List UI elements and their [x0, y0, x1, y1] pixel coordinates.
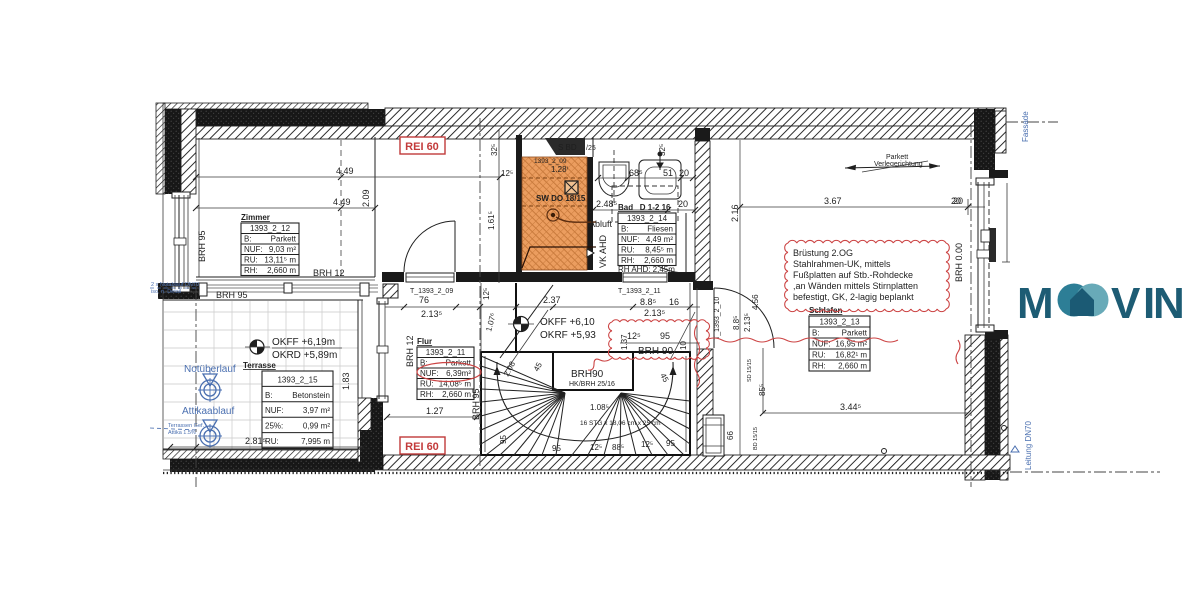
svg-text:M: M — [1017, 279, 1055, 328]
svg-text:RH AHD: 2,45m: RH AHD: 2,45m — [618, 265, 675, 274]
svg-text:25%:: 25%: — [265, 422, 283, 431]
svg-text:3.67: 3.67 — [824, 196, 842, 206]
svg-text:Attika 1.5%: Attika 1.5% — [168, 430, 196, 436]
svg-text:T_1393_2_11: T_1393_2_11 — [618, 288, 661, 295]
svg-text:2,660 m: 2,660 m — [838, 362, 867, 371]
svg-text:Verlegerichtung: Verlegerichtung — [874, 161, 923, 168]
svg-text:1393_2_15: 1393_2_15 — [277, 375, 318, 384]
svg-text:HK/BRH 25/16: HK/BRH 25/16 — [569, 381, 615, 388]
svg-text:REI 60: REI 60 — [405, 141, 439, 153]
svg-text:1.27: 1.27 — [426, 406, 444, 416]
svg-text:16 STG x 18,06 cm x 25 cm: 16 STG x 18,06 cm x 25 cm — [580, 420, 661, 427]
svg-text:Parkett: Parkett — [271, 235, 297, 244]
svg-text:2.81⁵: 2.81⁵ — [245, 436, 267, 446]
svg-text:1.08⁵: 1.08⁵ — [590, 403, 609, 412]
svg-text:2.09: 2.09 — [361, 189, 371, 207]
svg-text:Betonstein: Betonstein — [292, 391, 330, 400]
svg-text:4.56: 4.56 — [751, 294, 760, 310]
svg-text:B:: B: — [812, 329, 820, 338]
svg-text:8,45⁵ m: 8,45⁵ m — [645, 246, 673, 255]
svg-text:3,97 m²: 3,97 m² — [303, 406, 330, 415]
svg-text:NUF:: NUF: — [244, 245, 263, 254]
svg-text:1.83: 1.83 — [341, 372, 351, 390]
svg-text:2.48⁵: 2.48⁵ — [596, 199, 618, 209]
svg-text:7,995 m: 7,995 m — [301, 437, 330, 446]
svg-text:/25: /25 — [586, 145, 596, 152]
svg-text:51: 51 — [663, 168, 673, 178]
svg-text:Fliesen: Fliesen — [647, 225, 673, 234]
svg-text:10: 10 — [679, 341, 688, 350]
svg-text:B:: B: — [265, 391, 273, 400]
svg-text:OKRF +5,93: OKRF +5,93 — [540, 330, 596, 341]
svg-text:20: 20 — [951, 196, 961, 206]
svg-text:N: N — [1153, 279, 1185, 328]
svg-text:Schlafen: Schlafen — [809, 306, 842, 315]
svg-text:REI 60: REI 60 — [405, 441, 439, 453]
svg-text:16,82¹ m: 16,82¹ m — [835, 351, 867, 360]
svg-text:4,49 m²: 4,49 m² — [646, 235, 673, 244]
svg-text:2.13⁵: 2.13⁵ — [644, 308, 666, 318]
svg-text:2 x Notablauf DN70: 2 x Notablauf DN70 — [151, 282, 199, 288]
svg-text:1393_2_13: 1393_2_13 — [819, 318, 860, 327]
svg-text:BRH 0.00: BRH 0.00 — [954, 243, 964, 282]
svg-text:Fußplatten auf Stb.-Rohdecke: Fußplatten auf Stb.-Rohdecke — [793, 270, 913, 280]
svg-text:Terrasse: Terrasse — [243, 361, 276, 370]
svg-text:T_1393_2_10: T_1393_2_10 — [714, 297, 721, 340]
svg-text:68⁵: 68⁵ — [629, 168, 643, 178]
svg-text:RU:: RU: — [265, 437, 279, 446]
svg-text:16: 16 — [669, 297, 679, 307]
svg-text:9,03 m²: 9,03 m² — [269, 245, 296, 254]
svg-text:OKFF +6,10: OKFF +6,10 — [540, 317, 595, 328]
svg-text:SW DO 18/15: SW DO 18/15 — [536, 194, 586, 203]
svg-text:B:: B: — [244, 235, 252, 244]
svg-text:,an Wänden mittels Stirnplatte: ,an Wänden mittels Stirnplatten — [793, 281, 918, 291]
svg-text:32⁵: 32⁵ — [490, 144, 499, 156]
svg-text:13,11⁵ m: 13,11⁵ m — [264, 256, 296, 265]
svg-text:8.8⁵: 8.8⁵ — [640, 297, 657, 307]
svg-text:S BD: S BD — [558, 143, 577, 152]
svg-text:66: 66 — [726, 431, 735, 440]
svg-text:1393_2_09: 1393_2_09 — [534, 158, 567, 165]
svg-text:RH:: RH: — [621, 256, 635, 265]
svg-text:BRH 12: BRH 12 — [405, 335, 415, 367]
svg-text:VK AHD: VK AHD — [598, 234, 608, 268]
svg-text:1393_2_12: 1393_2_12 — [250, 224, 291, 233]
svg-text:3.44⁵: 3.44⁵ — [840, 402, 862, 412]
svg-text:Parkett: Parkett — [842, 329, 868, 338]
svg-text:RU:: RU: — [420, 380, 434, 389]
svg-text:T_1393_2_09: T_1393_2_09 — [410, 288, 453, 295]
svg-text:76: 76 — [419, 295, 429, 305]
svg-text:32⁵: 32⁵ — [658, 144, 667, 156]
svg-text:SD 15/15: SD 15/15 — [747, 359, 753, 382]
svg-text:12⁵: 12⁵ — [501, 169, 513, 178]
svg-text:2.13⁵: 2.13⁵ — [743, 313, 752, 332]
svg-text:1.28ⁱ: 1.28ⁱ — [551, 165, 568, 174]
svg-text:BRH 95: BRH 95 — [197, 230, 207, 262]
svg-text:NUF:: NUF: — [265, 406, 284, 415]
svg-text:BRH90: BRH90 — [571, 369, 604, 380]
svg-text:RH:: RH: — [244, 266, 258, 275]
svg-text:Bad D 1-2 16: Bad D 1-2 16 — [618, 203, 671, 212]
svg-text:RH:: RH: — [812, 362, 826, 371]
svg-text:iso. n. Detail: iso. n. Detail — [151, 289, 181, 295]
svg-text:Attikaablauf: Attikaablauf — [182, 406, 234, 417]
svg-text:OKFF +6,19m: OKFF +6,19m — [272, 337, 335, 348]
svg-text:NUF:: NUF: — [420, 369, 439, 378]
svg-text:20: 20 — [679, 168, 689, 178]
svg-text:2,660 m: 2,660 m — [267, 266, 296, 275]
svg-text:1393_2_14: 1393_2_14 — [627, 214, 668, 223]
svg-text:BD 15/15: BD 15/15 — [753, 427, 759, 450]
svg-text:2.37: 2.37 — [543, 295, 561, 305]
svg-text:4.49: 4.49 — [336, 166, 354, 176]
svg-text:Fassade: Fassade — [1021, 111, 1030, 142]
svg-text:6,39m²: 6,39m² — [446, 369, 471, 378]
svg-text:2,660 m: 2,660 m — [644, 256, 673, 265]
svg-text:RU:: RU: — [244, 256, 258, 265]
svg-text:Stahlrahmen-UK, mittels: Stahlrahmen-UK, mittels — [793, 259, 891, 269]
svg-text:BRH 90: BRH 90 — [638, 346, 673, 357]
svg-text:2,660 m: 2,660 m — [442, 390, 471, 399]
svg-text:Notüberlauf: Notüberlauf — [184, 364, 236, 375]
svg-text:NUF:: NUF: — [621, 235, 640, 244]
svg-text:95: 95 — [552, 444, 561, 453]
svg-text:Parkett: Parkett — [886, 154, 908, 161]
svg-text:RU:: RU: — [621, 246, 635, 255]
svg-text:88⁵: 88⁵ — [612, 443, 624, 452]
svg-text:2.13⁵: 2.13⁵ — [421, 309, 443, 319]
svg-text:0,99 m²: 0,99 m² — [303, 422, 330, 431]
svg-text:1.61⁵: 1.61⁵ — [487, 211, 496, 230]
svg-text:8.8⁵: 8.8⁵ — [732, 316, 741, 330]
svg-text:4.49: 4.49 — [333, 197, 351, 207]
svg-text:Terrassen Gef.: Terrassen Gef. — [168, 423, 205, 429]
svg-text:12⁵: 12⁵ — [627, 331, 641, 341]
svg-text:12⁵: 12⁵ — [590, 443, 602, 452]
svg-text:1393_2_11: 1393_2_11 — [426, 348, 466, 357]
svg-text:Zimmer: Zimmer — [241, 213, 270, 222]
svg-text:Flur: Flur — [417, 337, 432, 346]
svg-text:V: V — [1111, 279, 1141, 328]
svg-text:befestigt, GK, 2-lagig beplank: befestigt, GK, 2-lagig beplankt — [793, 292, 914, 302]
svg-text:OKRD +5,89m: OKRD +5,89m — [272, 350, 337, 361]
svg-text:20: 20 — [678, 199, 688, 209]
svg-text:2.16: 2.16 — [730, 204, 740, 222]
svg-text:95: 95 — [660, 331, 670, 341]
svg-text:BRH 12: BRH 12 — [313, 268, 345, 278]
svg-text:95: 95 — [499, 435, 508, 444]
svg-text:Leitung DN70: Leitung DN70 — [1024, 421, 1033, 470]
svg-text:BRH 95: BRH 95 — [216, 290, 248, 300]
svg-text:12⁵: 12⁵ — [641, 440, 653, 449]
svg-text:12⁵: 12⁵ — [482, 288, 491, 300]
svg-text:RU:: RU: — [812, 351, 826, 360]
svg-text:85⁵: 85⁵ — [758, 384, 767, 396]
svg-text:Abluft: Abluft — [589, 219, 613, 229]
svg-text:95: 95 — [666, 439, 675, 448]
svg-text:RH:: RH: — [420, 390, 434, 399]
svg-text:Brüstung 2.OG: Brüstung 2.OG — [793, 248, 853, 258]
svg-text:B:: B: — [621, 225, 629, 234]
